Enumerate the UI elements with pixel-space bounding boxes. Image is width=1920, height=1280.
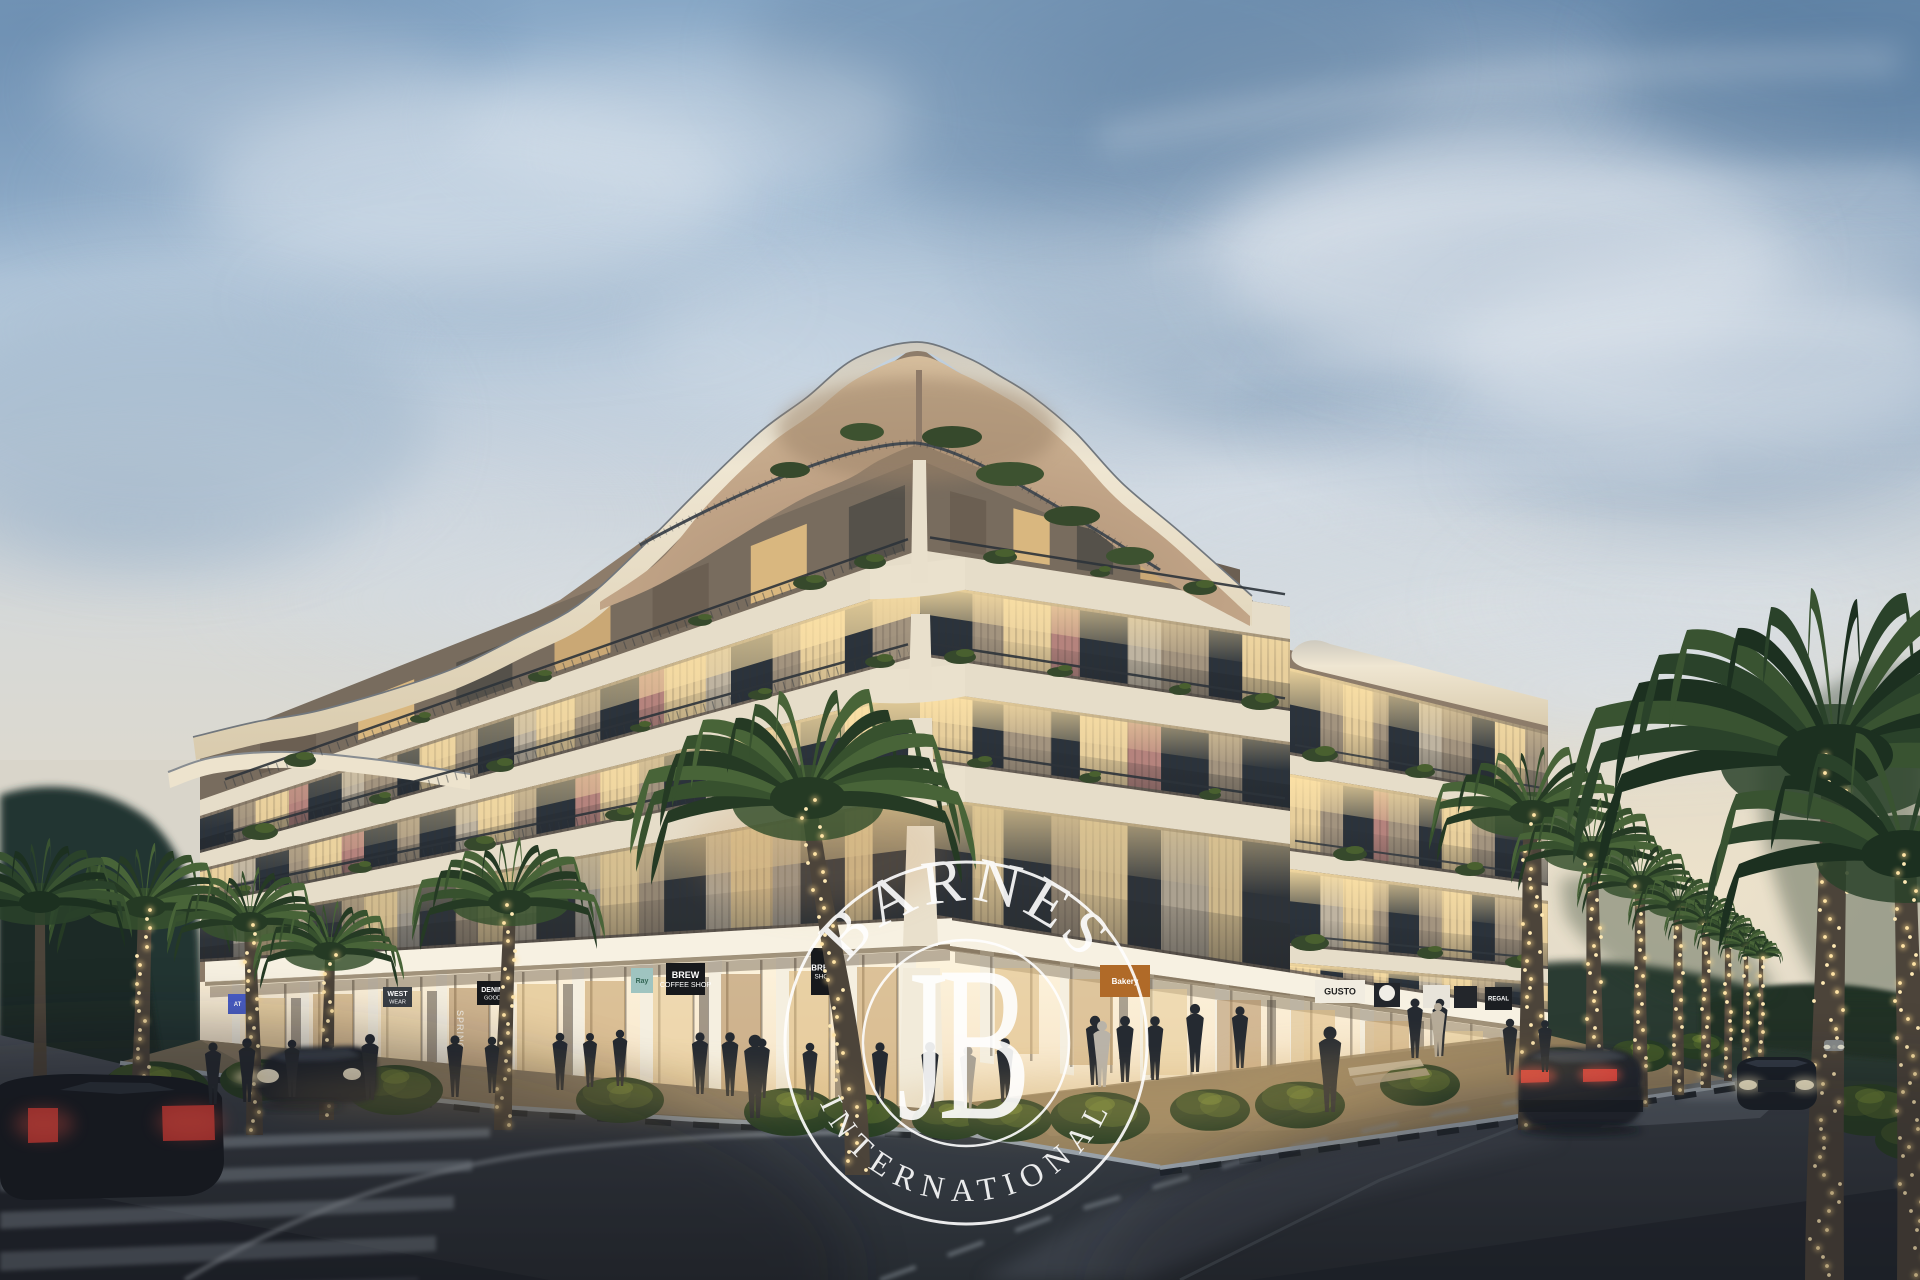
svg-text:GOOD: GOOD (484, 995, 501, 1001)
svg-text:B: B (938, 922, 1031, 1167)
svg-text:AT: AT (234, 1002, 242, 1008)
svg-text:BREW: BREW (672, 970, 700, 980)
svg-text:COFFEE SHOP: COFFEE SHOP (660, 980, 712, 989)
svg-text:WEST: WEST (387, 991, 408, 998)
svg-text:Ray: Ray (636, 978, 649, 985)
svg-text:REGAL: REGAL (1488, 997, 1509, 1003)
svg-text:WEAR: WEAR (389, 999, 406, 1005)
svg-text:GUSTO: GUSTO (1324, 987, 1356, 997)
